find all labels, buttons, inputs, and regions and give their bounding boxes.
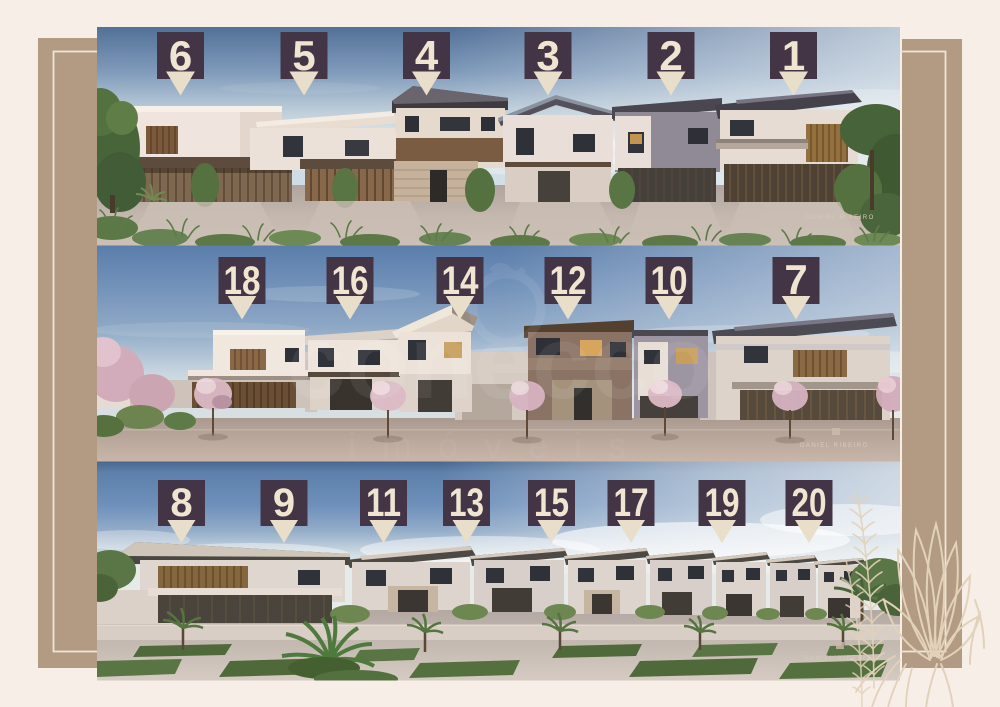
svg-text:3: 3 [536, 32, 559, 79]
svg-text:12: 12 [550, 259, 587, 303]
svg-text:2: 2 [659, 32, 682, 79]
svg-text:DANIEL RIBEIRO: DANIEL RIBEIRO [806, 215, 875, 221]
svg-text:20: 20 [792, 481, 827, 525]
svg-text:7: 7 [784, 256, 807, 303]
svg-text:15: 15 [534, 481, 569, 525]
svg-text:1: 1 [782, 32, 805, 79]
svg-text:17: 17 [614, 481, 649, 525]
svg-text:4: 4 [415, 32, 439, 79]
svg-text:19: 19 [705, 481, 740, 525]
svg-text:11: 11 [366, 481, 401, 525]
svg-text:conecco: conecco [287, 304, 713, 421]
svg-text:5: 5 [292, 32, 315, 79]
svg-text:9: 9 [273, 481, 295, 525]
svg-text:16: 16 [332, 259, 369, 303]
svg-text:8: 8 [170, 481, 192, 525]
svg-text:14: 14 [442, 259, 480, 303]
svg-text:DANIEL RIBEIRO: DANIEL RIBEIRO [800, 443, 869, 449]
svg-text:18: 18 [224, 259, 261, 303]
svg-text:imóveis: imóveis [348, 425, 652, 466]
svg-text:13: 13 [449, 481, 484, 525]
svg-text:10: 10 [651, 259, 688, 303]
svg-text:6: 6 [169, 32, 192, 79]
svg-text:DANIEL RIBEIRO: DANIEL RIBEIRO [804, 656, 873, 662]
